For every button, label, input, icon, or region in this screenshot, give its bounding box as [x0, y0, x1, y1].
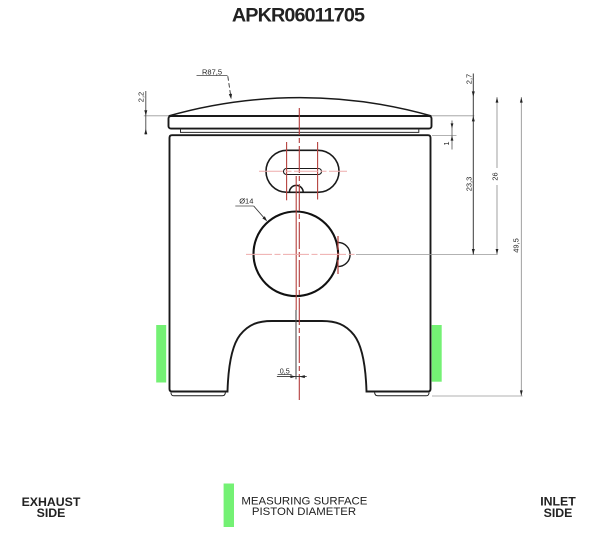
svg-text:2,7: 2,7: [465, 74, 474, 84]
svg-text:SIDE: SIDE: [544, 506, 573, 520]
svg-text:Ø14: Ø14: [239, 197, 253, 206]
svg-text:23,3: 23,3: [465, 177, 474, 192]
svg-text:R87,5: R87,5: [202, 68, 222, 77]
svg-text:2,2: 2,2: [137, 92, 146, 102]
svg-text:SIDE: SIDE: [37, 506, 66, 520]
svg-text:1: 1: [442, 141, 451, 145]
svg-text:26: 26: [490, 172, 499, 180]
svg-text:PISTON DIAMETER: PISTON DIAMETER: [252, 506, 356, 518]
svg-text:APKR06011705: APKR06011705: [232, 5, 365, 27]
svg-text:49,5: 49,5: [512, 238, 521, 253]
